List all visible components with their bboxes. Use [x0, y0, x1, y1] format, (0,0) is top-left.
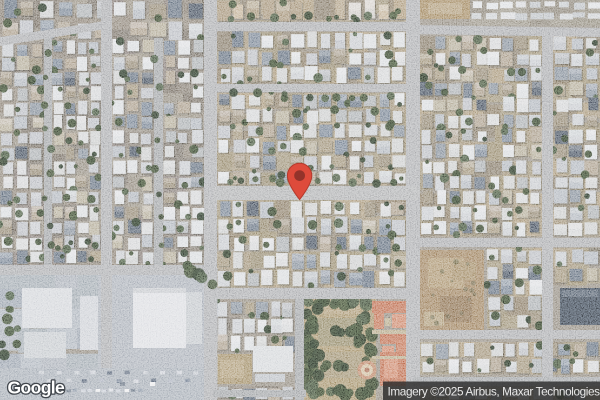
- svg-text:Google: Google: [8, 378, 66, 398]
- svg-text:Imagery ©2025 Airbus, Maxar Te: Imagery ©2025 Airbus, Maxar Technologies: [388, 385, 600, 399]
